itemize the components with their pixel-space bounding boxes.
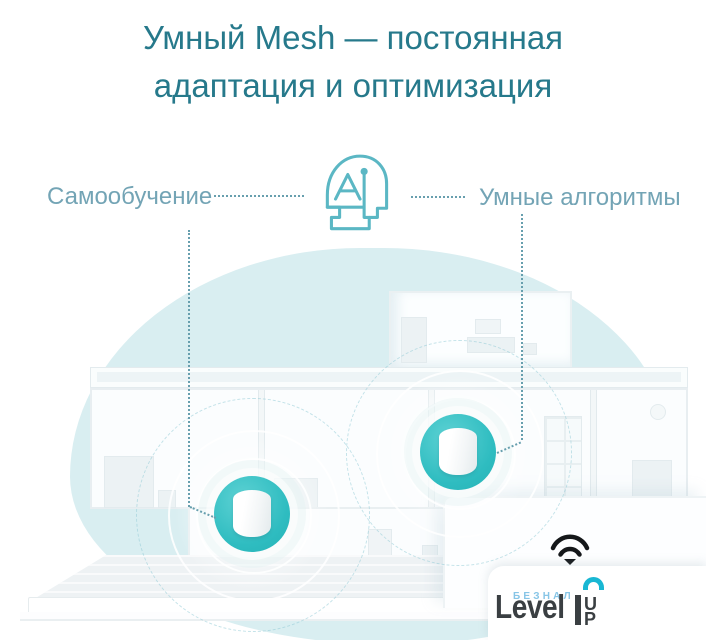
connector-right-horizontal bbox=[411, 196, 465, 198]
marketing-banner: Умный Mesh — постоянная адаптация и опти… bbox=[0, 0, 706, 640]
connector-left-vertical bbox=[188, 230, 190, 507]
connector-left-horizontal bbox=[214, 195, 304, 197]
label-smart-algorithms: Умные алгоритмы bbox=[479, 184, 681, 212]
wall-clock bbox=[650, 404, 666, 420]
logo-arc-icon bbox=[583, 577, 604, 590]
attic-chair bbox=[523, 343, 537, 355]
levelup-logo-card: БЕЗНАЛ Level U P bbox=[488, 566, 706, 640]
label-self-learning: Самообучение bbox=[47, 183, 212, 211]
mesh-unit-1-body bbox=[233, 490, 271, 537]
mesh-unit-2 bbox=[420, 414, 496, 490]
logo-divider-bar bbox=[575, 595, 581, 625]
title-line-2: адаптация и оптимизация bbox=[154, 67, 552, 104]
logo-up-p: P bbox=[584, 610, 596, 628]
ai-head-icon bbox=[316, 150, 400, 244]
attic-monitor bbox=[475, 319, 501, 334]
circuit-node-dot bbox=[361, 168, 368, 175]
mesh-unit-2-body bbox=[439, 428, 477, 475]
mesh-unit-1 bbox=[214, 476, 290, 552]
page-title: Умный Mesh — постоянная адаптация и опти… bbox=[0, 14, 706, 110]
title-line-1: Умный Mesh — постоянная bbox=[143, 19, 563, 56]
interior-wall bbox=[590, 390, 597, 507]
logo-level-text: Level bbox=[495, 590, 565, 623]
connector-right-vertical bbox=[521, 214, 523, 440]
